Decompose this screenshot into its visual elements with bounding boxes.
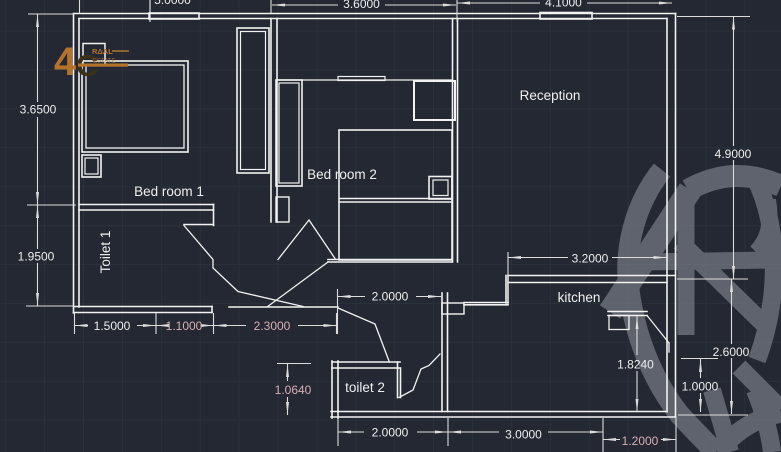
svg-text:3.2000: 3.2000 [572, 252, 609, 266]
svg-text:Bed room 2: Bed room 2 [307, 167, 377, 182]
svg-text:3.0000: 3.0000 [505, 428, 542, 442]
svg-text:4.1000: 4.1000 [545, 0, 582, 10]
svg-text:2.6000: 2.6000 [713, 345, 750, 359]
svg-text:1.9500: 1.9500 [18, 250, 55, 264]
svg-text:RΔAL: RΔAL [92, 47, 113, 56]
svg-text:Toilet 1: Toilet 1 [98, 231, 113, 274]
svg-text:1.5000: 1.5000 [94, 319, 131, 333]
svg-text:1.2000: 1.2000 [622, 434, 659, 448]
svg-text:2.3000: 2.3000 [254, 319, 291, 333]
svg-text:3.6500: 3.6500 [20, 103, 57, 117]
svg-text:Reception: Reception [520, 88, 581, 103]
svg-text:Bed room 1: Bed room 1 [134, 184, 204, 199]
svg-text:toilet 2: toilet 2 [345, 380, 385, 395]
svg-text:1.0640: 1.0640 [275, 383, 312, 397]
svg-text:1.1000: 1.1000 [166, 319, 203, 333]
svg-text:5.0000: 5.0000 [154, 0, 191, 7]
svg-text:4.9000: 4.9000 [715, 147, 752, 161]
svg-text:2.0000: 2.0000 [372, 290, 409, 304]
svg-text:kitchen: kitchen [558, 290, 601, 305]
svg-text:2.0000: 2.0000 [372, 426, 409, 440]
svg-text:3.6000: 3.6000 [343, 0, 380, 11]
svg-text:1.0000: 1.0000 [682, 380, 719, 394]
svg-text:4: 4 [54, 40, 77, 84]
svg-text:1.8240: 1.8240 [617, 358, 654, 372]
svg-text:ESTATE: ESTATE [93, 59, 115, 65]
